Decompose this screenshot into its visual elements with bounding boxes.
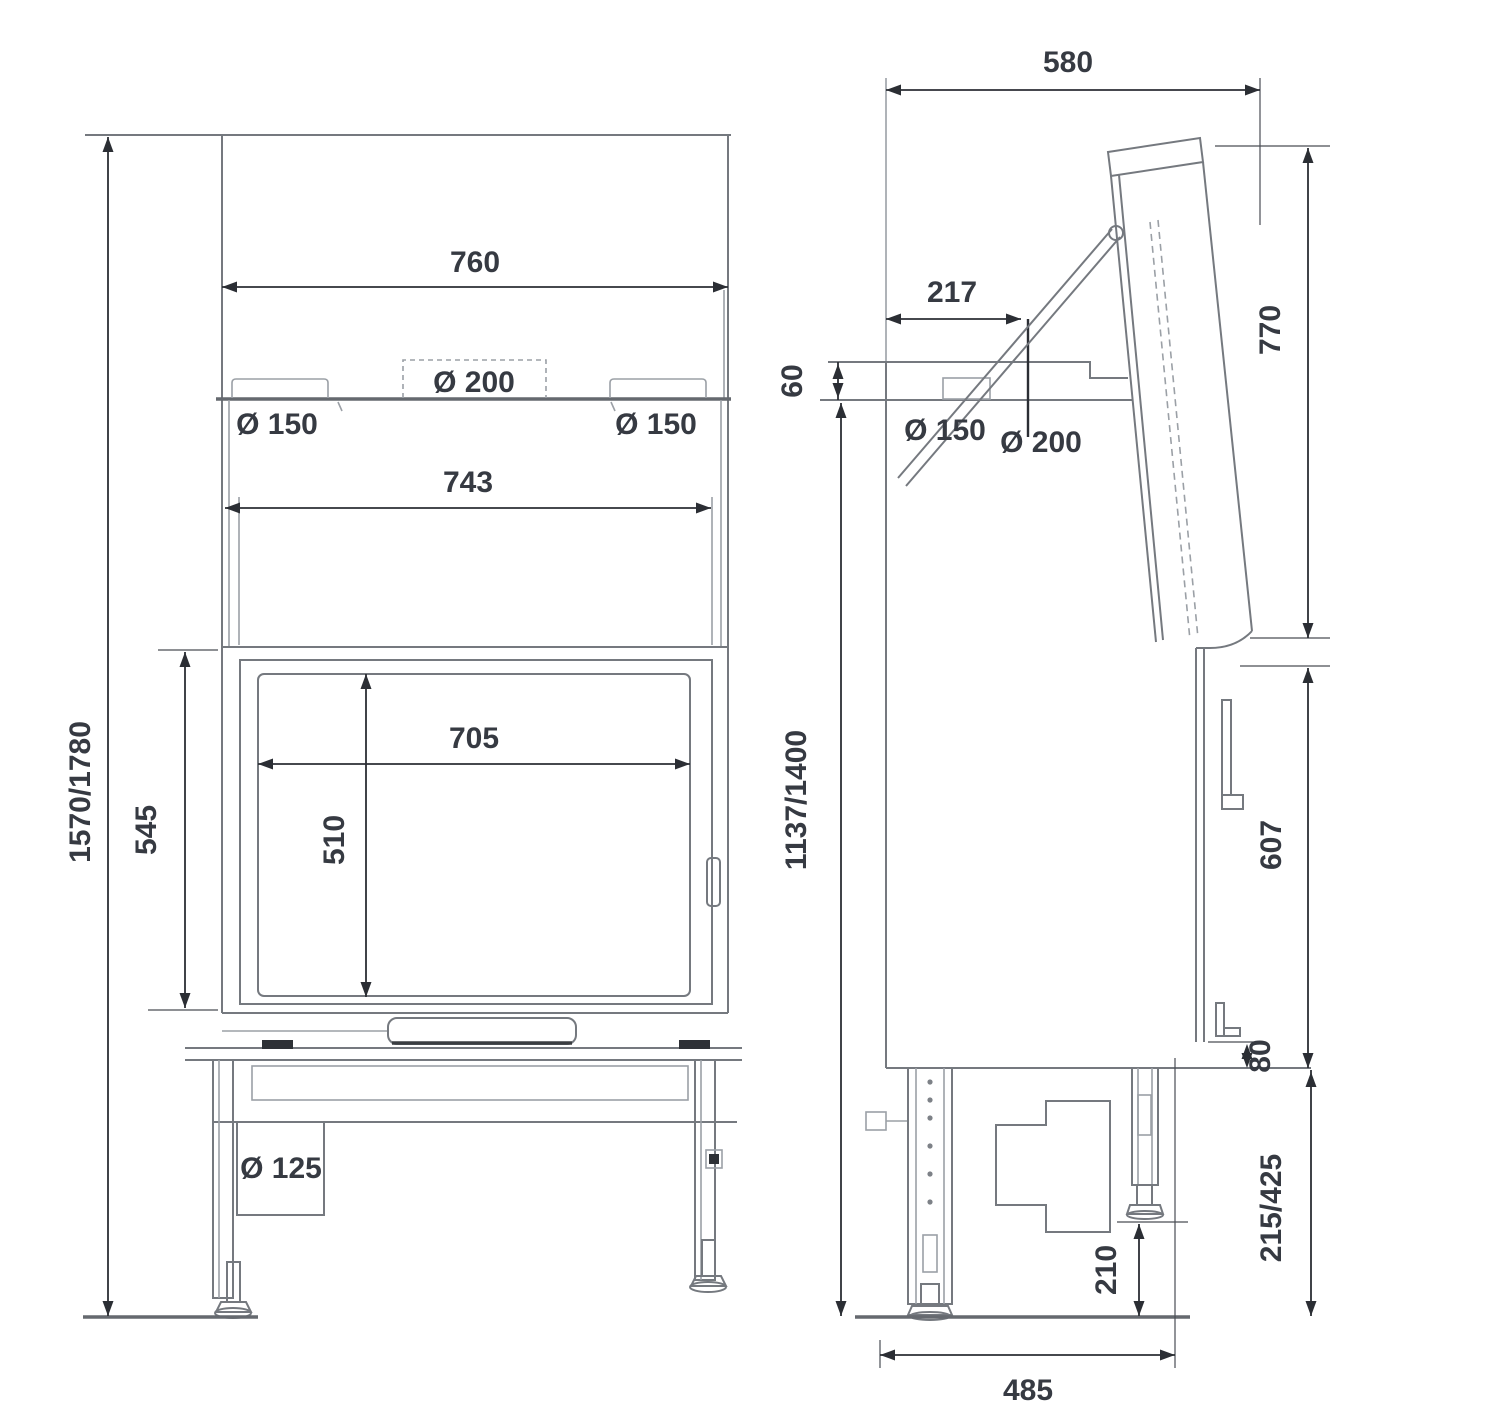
front-dim-inner-width: 743 bbox=[443, 466, 493, 499]
rear-mount-clip bbox=[866, 1112, 886, 1130]
side-dim-top-step: 60 bbox=[776, 364, 809, 397]
technical-drawing-page: 1570/1780 760 743 705 510 bbox=[0, 0, 1500, 1427]
side-dim-front-panel-height: 607 bbox=[1255, 820, 1288, 870]
side-label-flue-center: Ø 200 bbox=[1000, 426, 1082, 459]
front-label-flue-center: Ø 200 bbox=[433, 366, 515, 399]
front-upper-housing bbox=[85, 135, 731, 1013]
ash-box bbox=[996, 1101, 1110, 1232]
side-dim-base-height: 215/425 bbox=[1255, 1154, 1288, 1262]
door-handle bbox=[388, 1018, 576, 1044]
side-leg-front bbox=[1132, 1068, 1158, 1185]
side-front-face bbox=[1196, 648, 1243, 1042]
front-base bbox=[185, 1018, 742, 1060]
front-label-flue-left: Ø 150 bbox=[236, 408, 318, 441]
front-view: 1570/1780 760 743 705 510 bbox=[64, 135, 742, 1318]
side-dim-install-height: 1137/1400 bbox=[780, 730, 813, 870]
leg-clamp bbox=[709, 1154, 719, 1164]
front-dim-glass-width: 705 bbox=[449, 722, 499, 755]
side-body bbox=[820, 78, 1311, 1130]
side-label-flue: Ø 150 bbox=[904, 414, 986, 447]
mount-clip-right bbox=[679, 1040, 710, 1049]
front-label-flue-right: Ø 150 bbox=[615, 408, 697, 441]
front-dim-door-height: 545 bbox=[130, 805, 163, 855]
side-dim-hood-height: 770 bbox=[1254, 305, 1287, 355]
flue-collar-left bbox=[232, 379, 328, 398]
side-dim-flue-offset: 217 bbox=[927, 276, 977, 309]
front-label-air-intake: Ø 125 bbox=[240, 1152, 322, 1185]
front-door bbox=[222, 647, 728, 1013]
flue-collar-right bbox=[610, 379, 706, 398]
front-dimensions: 1570/1780 760 743 705 510 bbox=[64, 137, 728, 1316]
side-dim-base-depth: 485 bbox=[1003, 1374, 1053, 1407]
side-leg-rear bbox=[908, 1068, 952, 1304]
side-dim-rear-gap: 80 bbox=[1244, 1039, 1277, 1072]
side-dimensions: 580 217 60 770 607 bbox=[776, 46, 1330, 1407]
side-view: 580 217 60 770 607 bbox=[776, 46, 1330, 1407]
front-underframe bbox=[83, 1060, 737, 1318]
front-dim-total-height: 1570/1780 bbox=[64, 721, 97, 863]
fireplace-dimension-drawing: 1570/1780 760 743 705 510 bbox=[0, 0, 1500, 1427]
tilted-door-panel bbox=[1108, 138, 1252, 648]
front-dim-glass-height: 510 bbox=[318, 815, 351, 865]
side-dim-foot-clearance: 210 bbox=[1090, 1245, 1123, 1295]
front-dim-top-width: 760 bbox=[450, 246, 500, 279]
side-door-handle bbox=[1222, 700, 1231, 795]
front-leg-right bbox=[695, 1060, 715, 1280]
side-dim-depth: 580 bbox=[1043, 46, 1093, 79]
lower-latch bbox=[1216, 1003, 1224, 1036]
door-hinge-plate bbox=[707, 858, 720, 906]
mount-clip-left bbox=[262, 1040, 293, 1049]
